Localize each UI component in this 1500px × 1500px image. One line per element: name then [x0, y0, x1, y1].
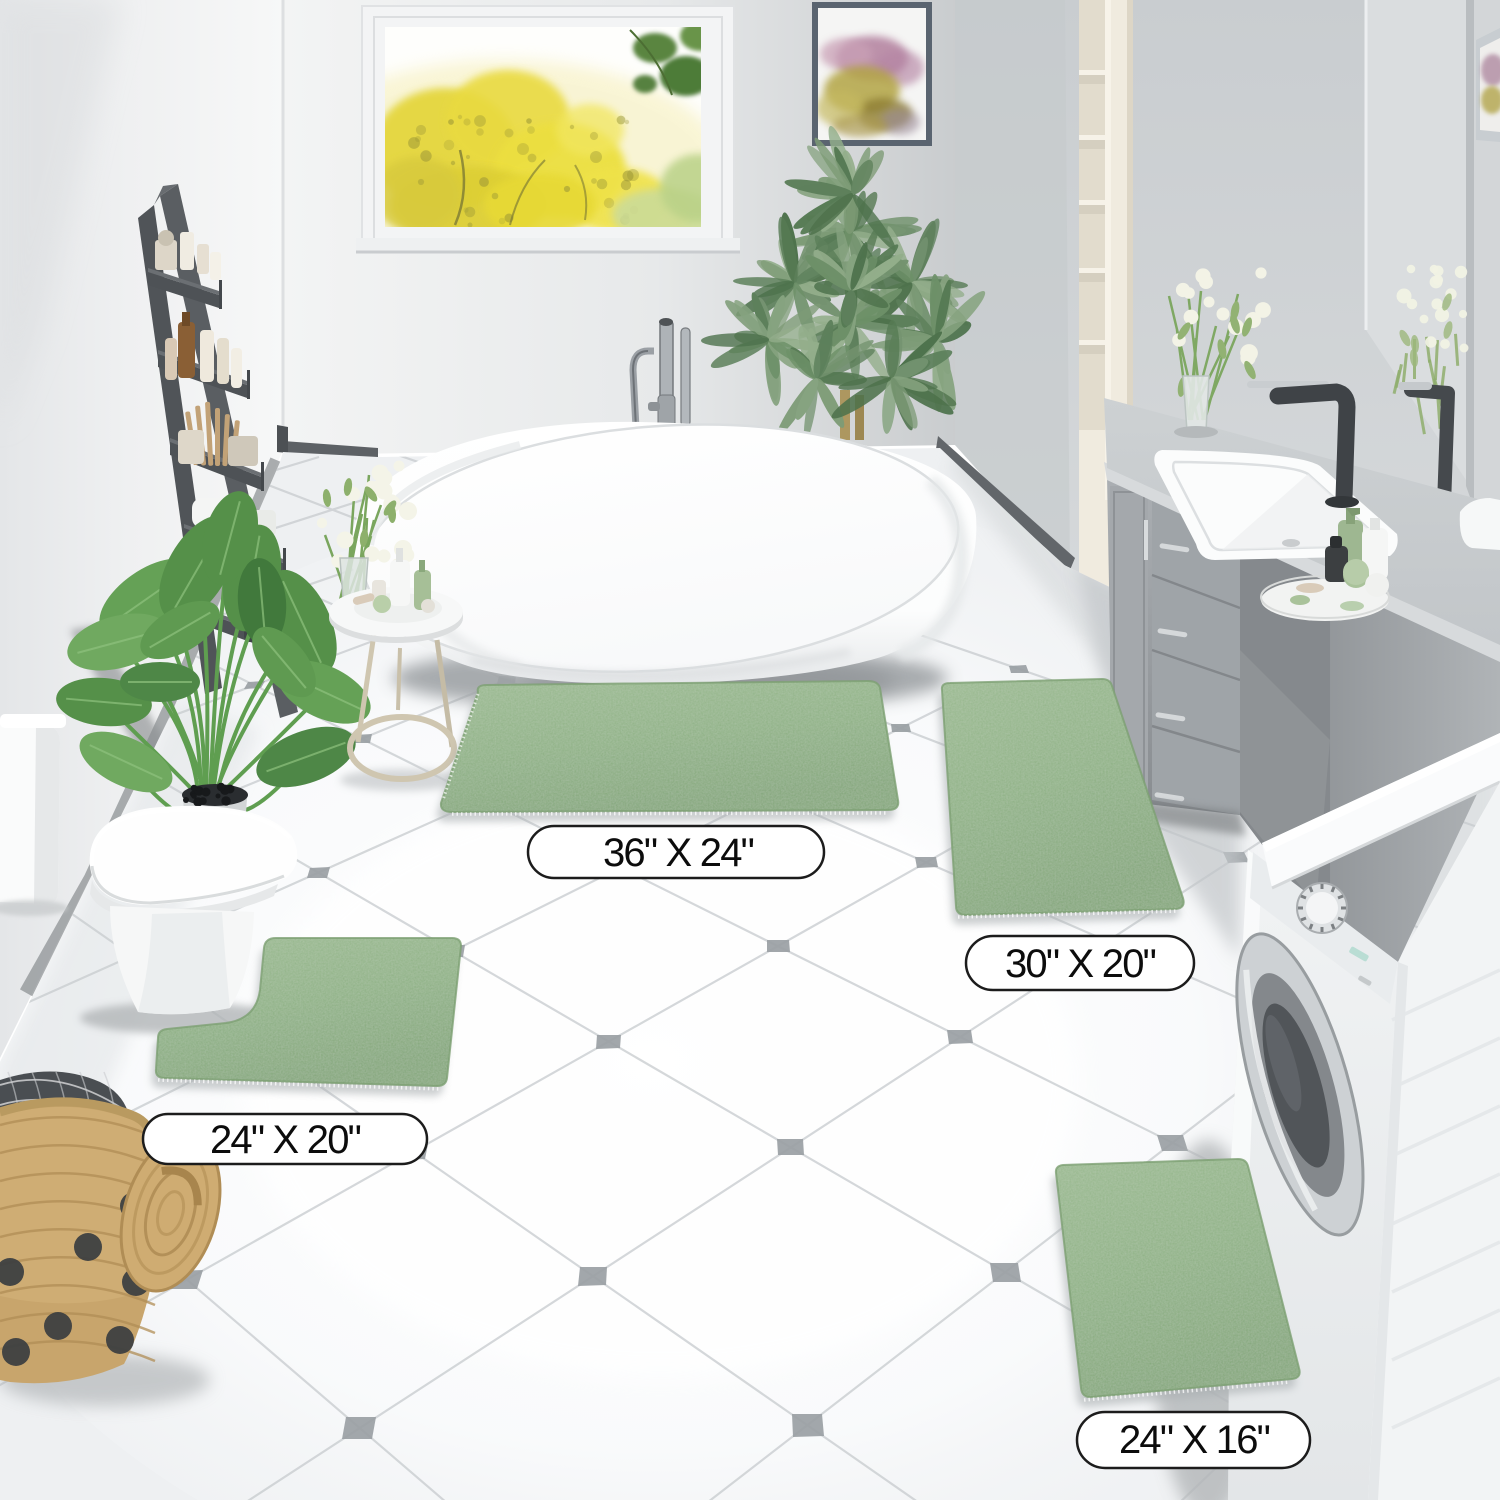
- svg-text:30" X 20": 30" X 20": [1005, 942, 1156, 986]
- svg-text:24" X 20": 24" X 20": [210, 1118, 361, 1162]
- svg-text:36" X 24": 36" X 24": [603, 831, 754, 875]
- svg-text:24" X 16": 24" X 16": [1119, 1418, 1270, 1462]
